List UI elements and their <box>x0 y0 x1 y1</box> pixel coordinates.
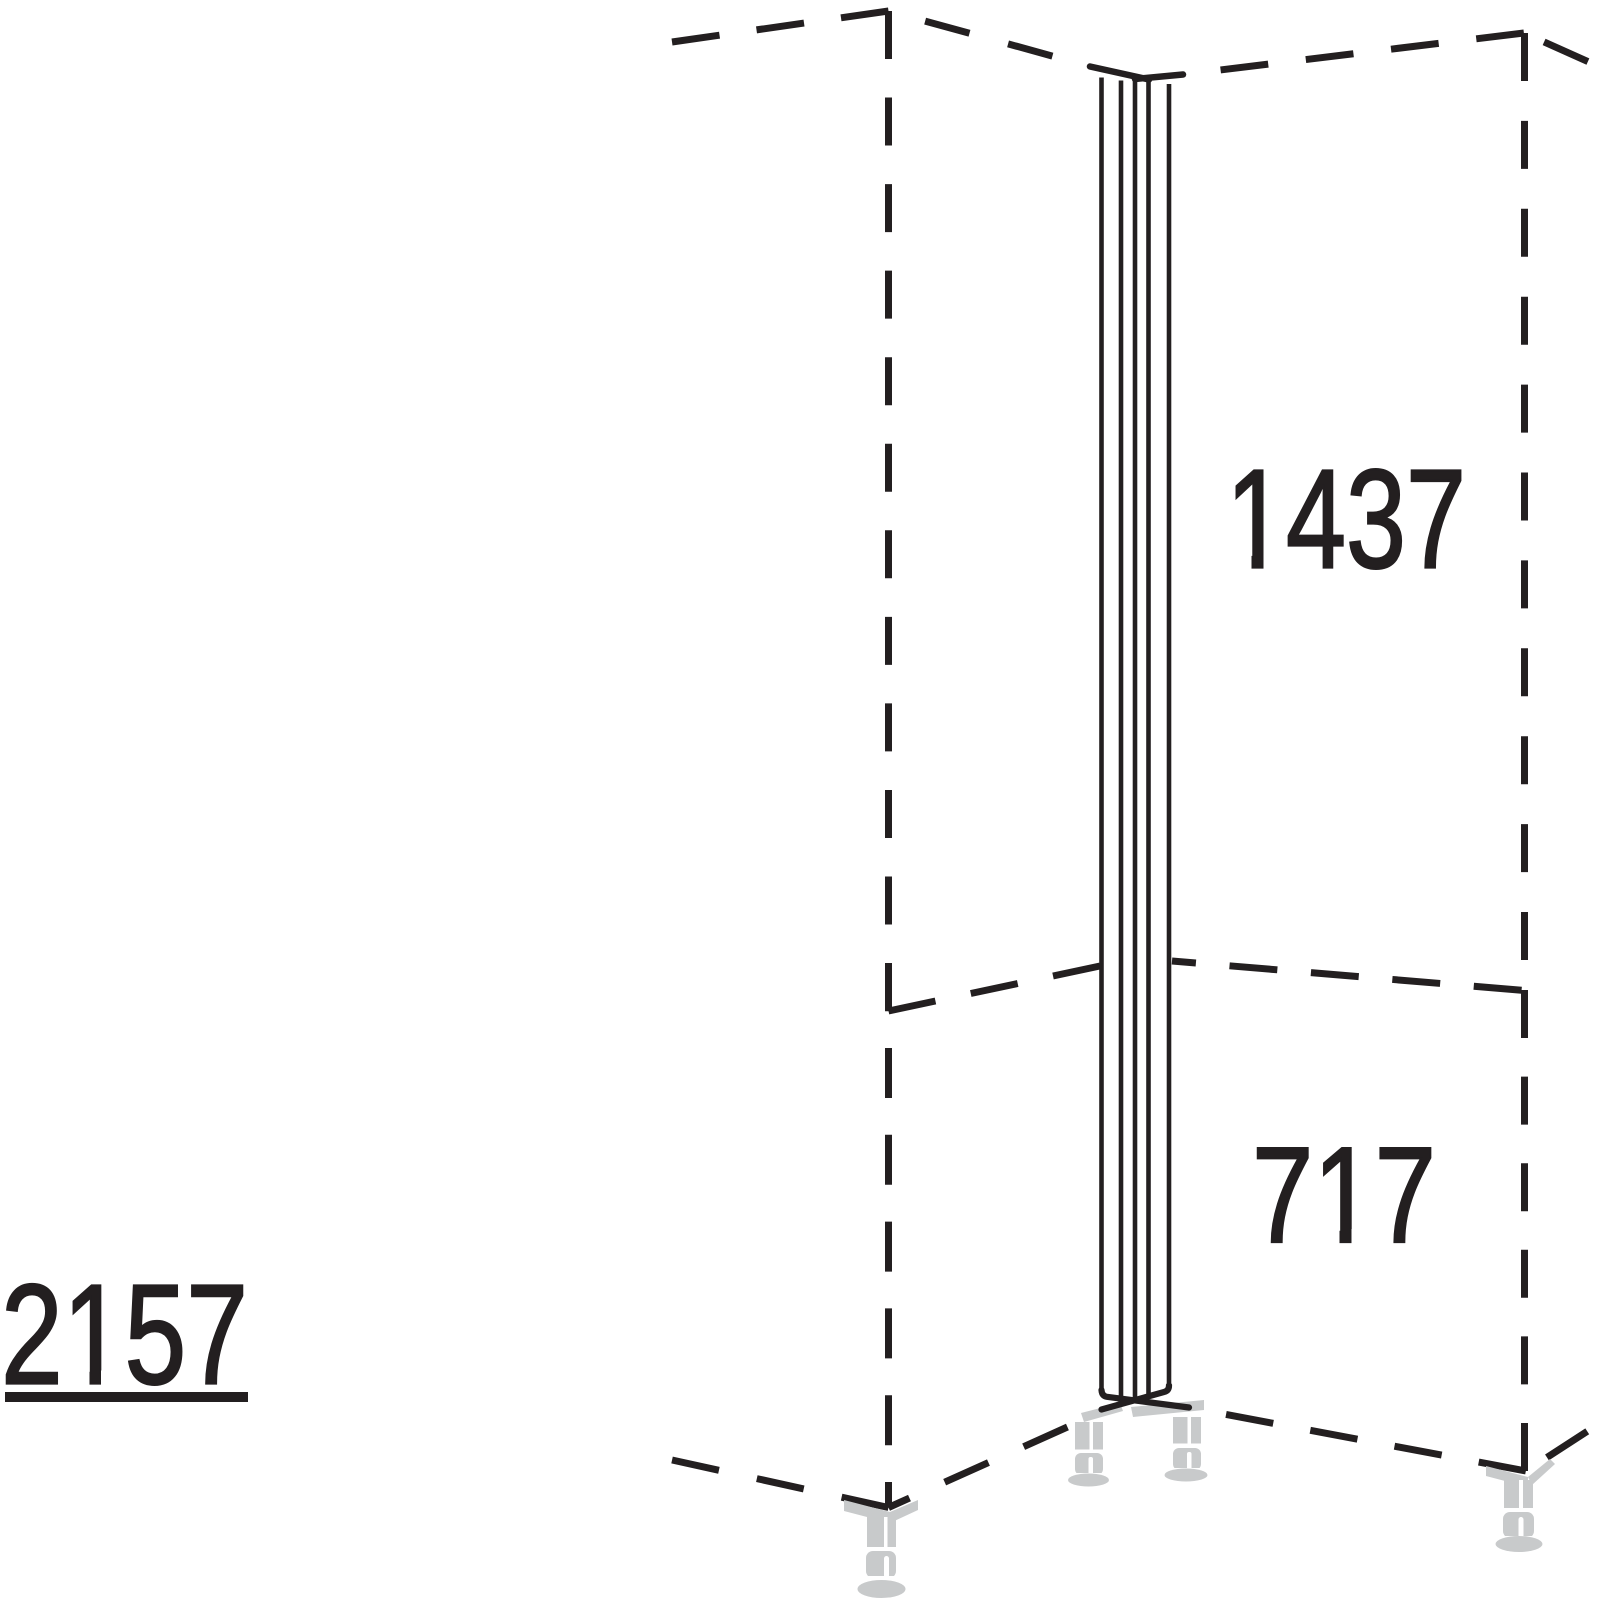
svg-text:717: 717 <box>1252 1118 1436 1271</box>
svg-text:2157: 2157 <box>1 1256 248 1415</box>
svg-text:1437: 1437 <box>1226 440 1466 598</box>
